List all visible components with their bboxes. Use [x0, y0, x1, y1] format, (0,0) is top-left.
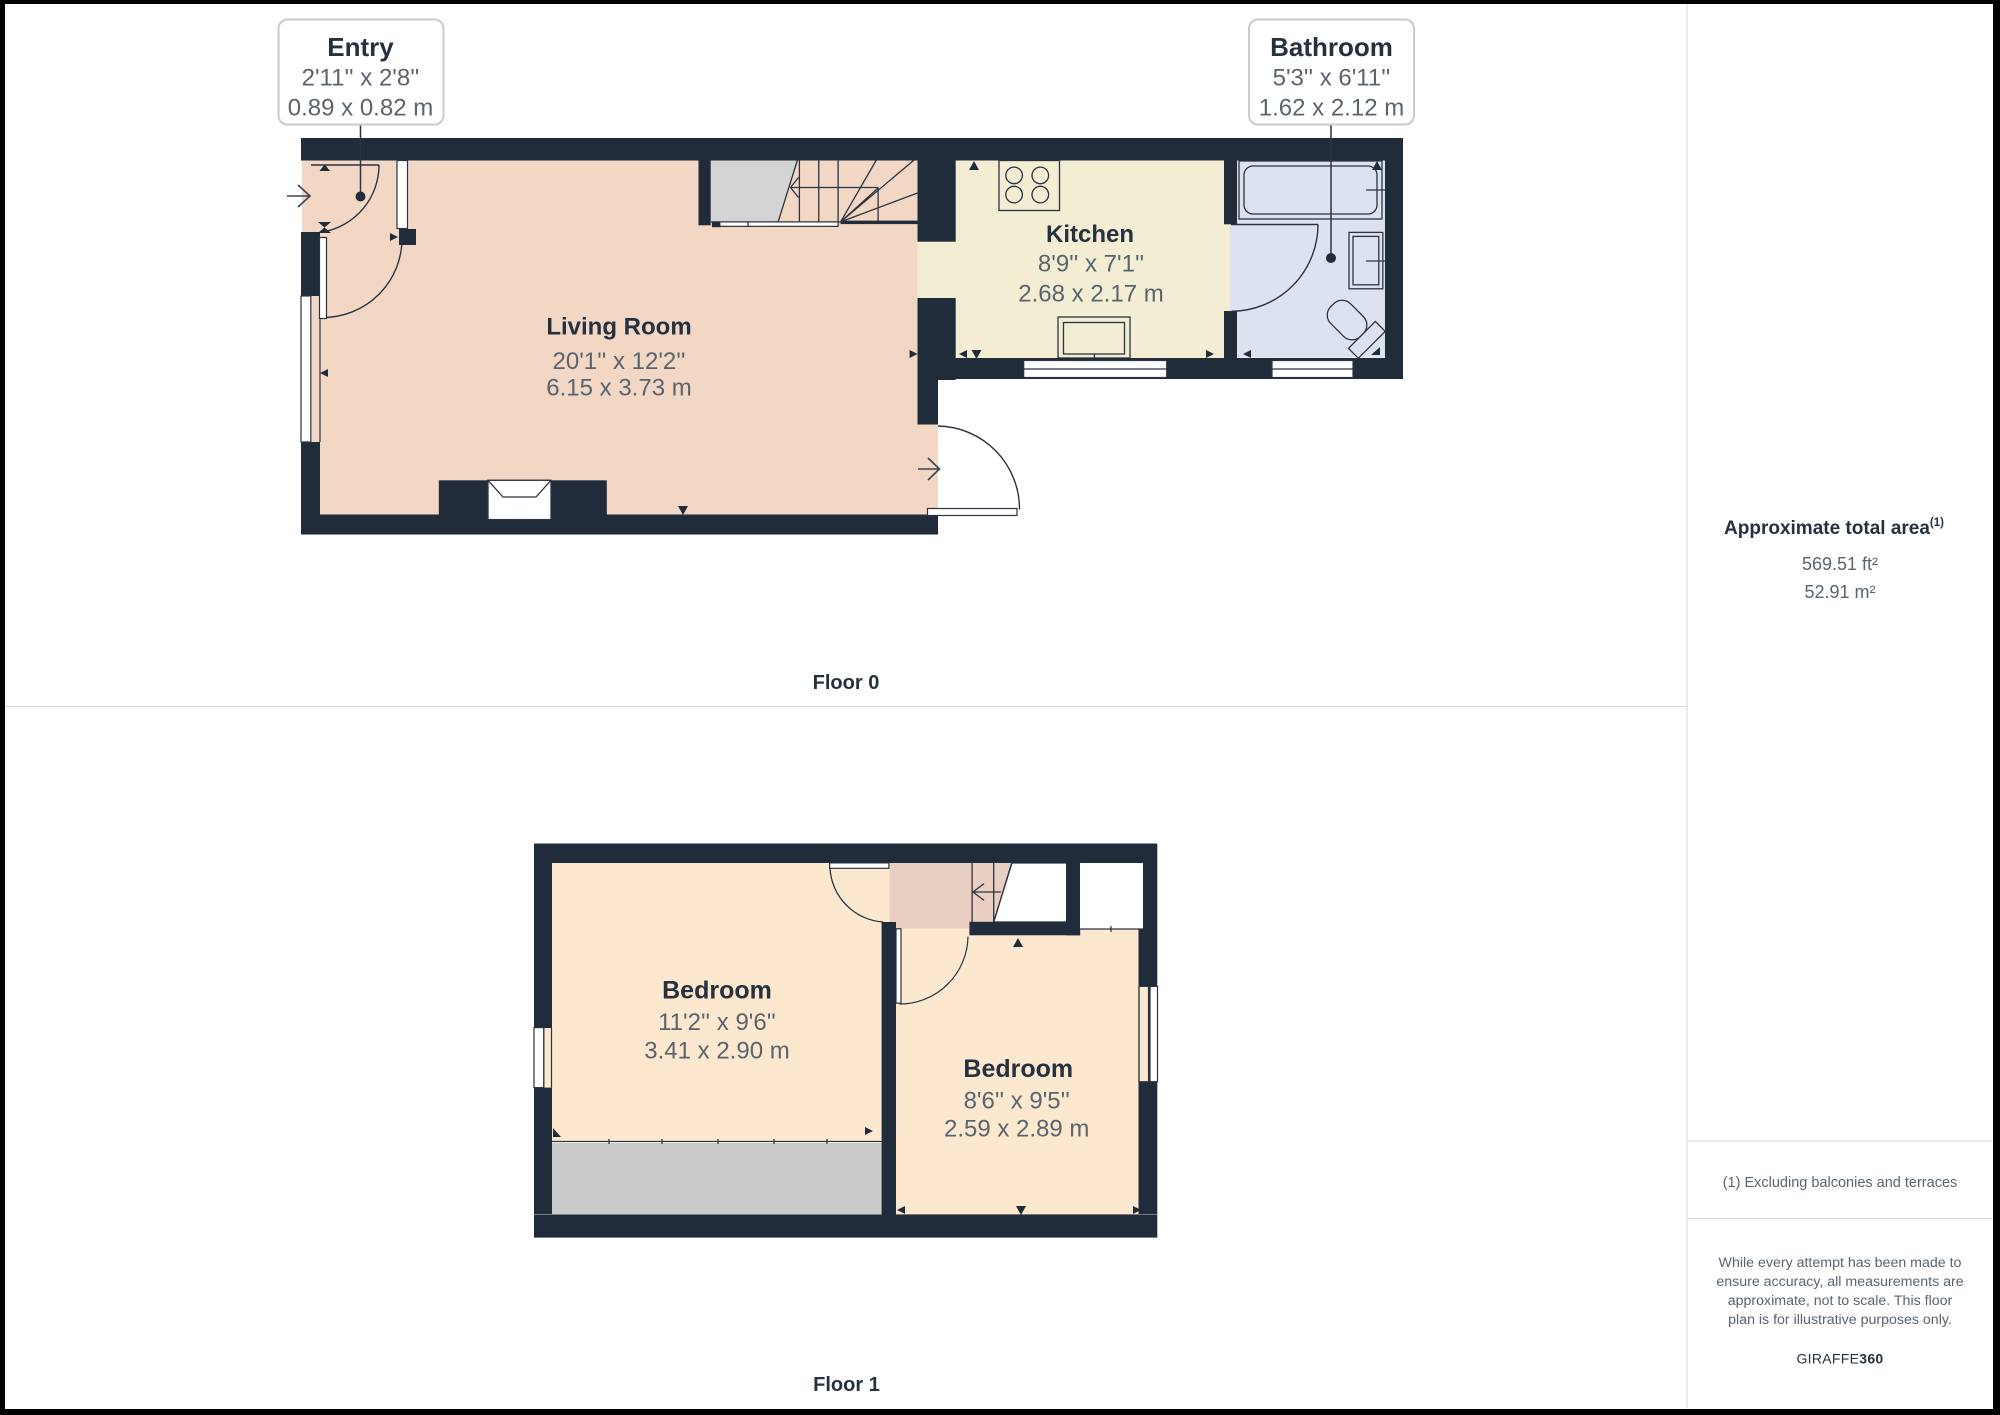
svg-text:52.91 m²: 52.91 m² — [1804, 582, 1875, 602]
svg-text:0.89 x 0.82 m: 0.89 x 0.82 m — [288, 95, 433, 122]
svg-text:569.51 ft²: 569.51 ft² — [1802, 554, 1878, 574]
svg-text:5'3'' x 6'11'': 5'3'' x 6'11'' — [1273, 65, 1391, 92]
svg-text:Bedroom: Bedroom — [662, 977, 772, 1005]
svg-text:plan is for illustrative purpo: plan is for illustrative purposes only. — [1728, 1312, 1952, 1328]
svg-text:6.15 x 3.73 m: 6.15 x 3.73 m — [546, 375, 691, 402]
svg-text:Living Room: Living Room — [546, 314, 691, 341]
svg-text:GIRAFFE360: GIRAFFE360 — [1796, 1351, 1883, 1367]
svg-text:2.59 x 2.89 m: 2.59 x 2.89 m — [944, 1116, 1089, 1143]
svg-text:Approximate total area(1): Approximate total area(1) — [1724, 517, 1944, 539]
svg-text:Entry: Entry — [327, 32, 394, 62]
svg-text:approximate, not to scale. Thi: approximate, not to scale. This floor — [1728, 1293, 1953, 1309]
svg-text:11'2'' x 9'6'': 11'2'' x 9'6'' — [658, 1009, 776, 1036]
svg-text:3.41 x 2.90 m: 3.41 x 2.90 m — [644, 1038, 789, 1065]
svg-text:2.68 x 2.17 m: 2.68 x 2.17 m — [1018, 281, 1163, 308]
svg-text:2'11'' x 2'8'': 2'11'' x 2'8'' — [302, 65, 420, 92]
svg-text:Floor 1: Floor 1 — [813, 1374, 880, 1396]
svg-text:While every attempt has been m: While every attempt has been made to — [1719, 1255, 1962, 1271]
svg-text:1.62 x 2.12 m: 1.62 x 2.12 m — [1259, 95, 1404, 122]
svg-text:Bathroom: Bathroom — [1270, 32, 1393, 62]
svg-text:8'6'' x 9'5'': 8'6'' x 9'5'' — [964, 1088, 1070, 1115]
svg-text:(1) Excluding balconies and te: (1) Excluding balconies and terraces — [1723, 1175, 1958, 1191]
svg-text:8'9'' x 7'1'': 8'9'' x 7'1'' — [1038, 251, 1144, 278]
svg-text:20'1'' x 12'2'': 20'1'' x 12'2'' — [553, 348, 686, 375]
svg-text:ensure accuracy, all measureme: ensure accuracy, all measurements are — [1716, 1274, 1963, 1290]
svg-text:Bedroom: Bedroom — [963, 1055, 1073, 1083]
svg-text:Kitchen: Kitchen — [1046, 221, 1134, 248]
svg-text:Floor 0: Floor 0 — [813, 672, 880, 694]
